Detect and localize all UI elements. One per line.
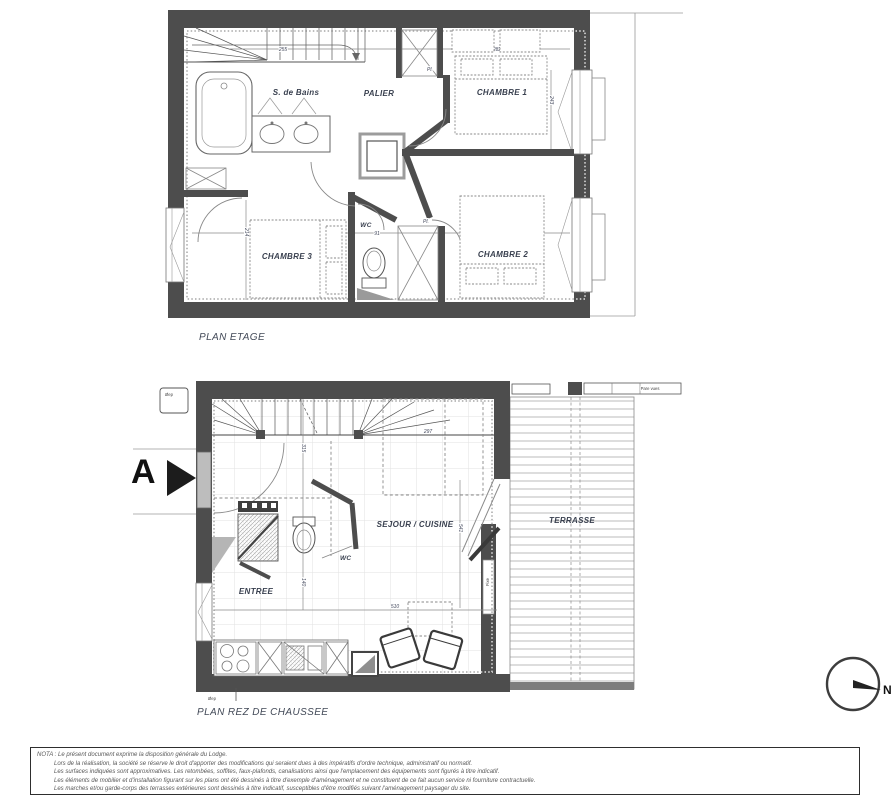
label-terrace: TERRASSE (549, 516, 595, 525)
svg-text:Øep: Øep (165, 392, 174, 397)
label-privacy-screen: Pare vues (641, 386, 660, 391)
kitchen-counter (214, 640, 348, 676)
section-arrow-icon (167, 460, 196, 496)
closet-top-label: Pl. (427, 67, 433, 73)
dim-wc-width: 91 (374, 231, 380, 237)
dim-bay-height: 541 (457, 524, 463, 533)
floorplan-drawing: 255 282 255 91 306 214 243 (0, 0, 894, 745)
compass-icon: N (827, 658, 892, 710)
bathtub-icon (196, 72, 252, 154)
nota-disclaimer: NOTA : Le présent document exprime la di… (30, 747, 860, 795)
downspout-top: Øep (160, 388, 188, 413)
section-letter: A (131, 453, 156, 491)
dim-bedroom3-depth: 214 (243, 227, 249, 237)
nota-line: Les surfaces indiquées sont approximativ… (37, 768, 853, 777)
dim-living-width: 510 (391, 604, 400, 610)
label-wc-rdc: WC (340, 555, 351, 562)
bed-chambre2 (460, 196, 544, 298)
floorplan-document: 255 282 255 91 306 214 243 (0, 0, 894, 800)
label-living-kitchen: SEJOUR / CUISINE (377, 520, 454, 529)
nota-line: Les marches et/ou garde-corps des terras… (37, 785, 853, 794)
label-wc-etage: WC (360, 222, 371, 229)
nota-line: Les éléments de mobilier et d'installati… (37, 777, 853, 786)
nota-line: Lors de la réalisation, la société se ré… (37, 760, 853, 769)
bed-chambre1 (452, 30, 547, 134)
wardrobe-left (186, 168, 226, 189)
dim-stairs-width: 255 (278, 47, 288, 53)
plan-rdc: Fixe Pare vues Øep Øep (160, 381, 681, 718)
label-bathroom: S. de Bains (273, 88, 320, 97)
dim-entry-depth: 140 (300, 578, 306, 587)
compass-north-label: N (883, 683, 892, 697)
nota-line: NOTA : Le présent document exprime la di… (37, 751, 853, 760)
section-window (197, 452, 211, 508)
label-entry: ENTREE (239, 587, 274, 596)
label-bedroom2: CHAMBRE 2 (478, 250, 529, 259)
terrace (510, 397, 634, 690)
dim-stairs-width-rdc: 297 (423, 429, 433, 435)
title-plan-rdc: PLAN REZ DE CHAUSSEE (197, 707, 328, 718)
dim-bedroom1-depth: 243 (548, 95, 554, 105)
label-bedroom1: CHAMBRE 1 (477, 88, 528, 97)
svg-text:Øep: Øep (208, 696, 217, 701)
dim-stairs-depth-rdc: 315 (300, 444, 306, 453)
duct-shaft (360, 134, 404, 178)
title-plan-etage: PLAN ETAGE (199, 332, 265, 343)
rdc-left-window (196, 583, 212, 641)
plan-etage: 255 282 255 91 306 214 243 (166, 10, 683, 343)
section-marker-a: A (131, 449, 196, 514)
doormat (352, 652, 378, 676)
label-fixed-window: Fixe (485, 577, 490, 586)
label-bedroom3: CHAMBRE 3 (262, 252, 313, 261)
toilet-rdc-icon (293, 517, 315, 553)
toilet-etage-icon (357, 248, 395, 300)
double-vanity-icon (252, 98, 330, 152)
etage-stairs (184, 28, 365, 62)
label-landing: PALIER (364, 89, 395, 98)
closet-bottom-label: Pl. (423, 219, 429, 225)
closet-bottom (398, 226, 438, 300)
